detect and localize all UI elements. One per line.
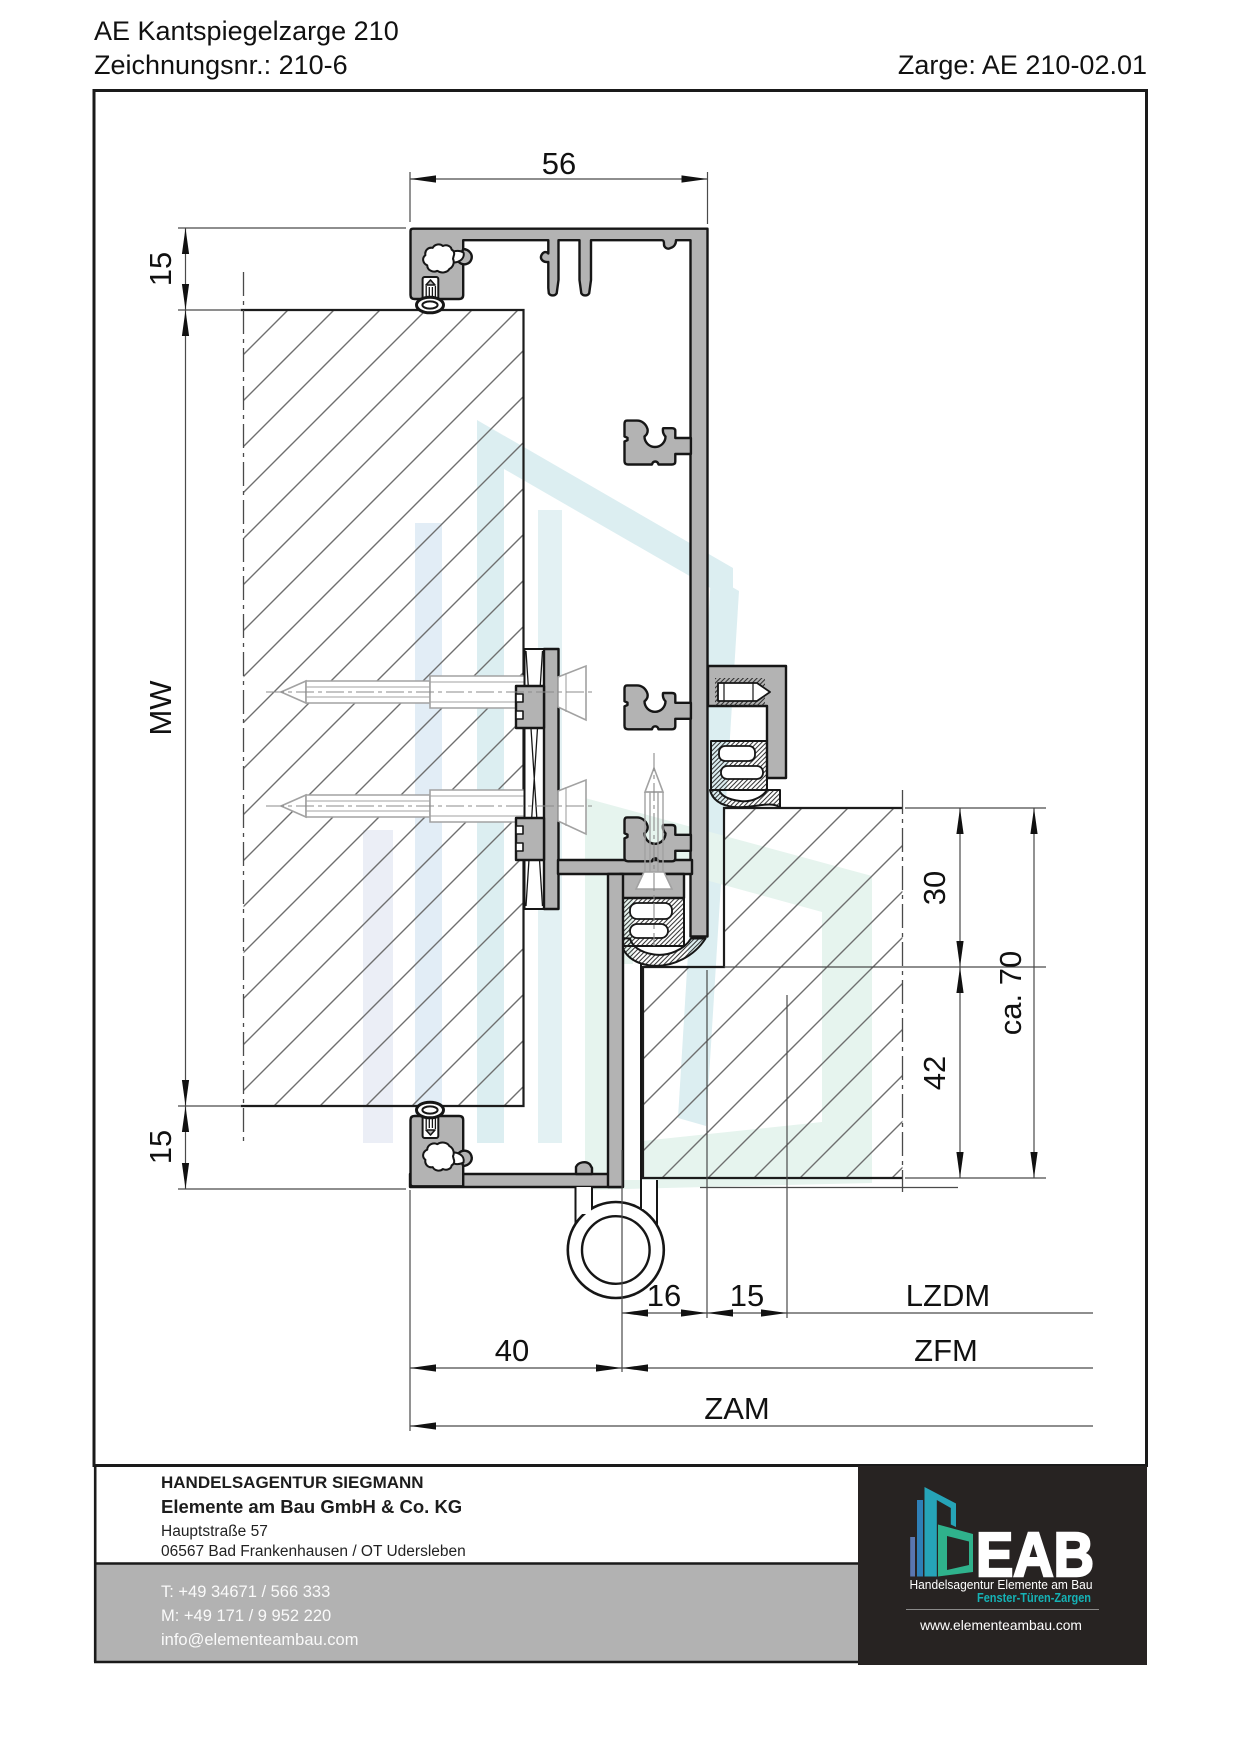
svg-text:Zarge: AE 210-02.01: Zarge: AE 210-02.01	[898, 50, 1147, 80]
svg-text:30: 30	[917, 871, 952, 905]
svg-text:HANDELSAGENTUR SIEGMANN: HANDELSAGENTUR SIEGMANN	[161, 1473, 424, 1492]
svg-text:06567 Bad Frankenhausen / OT U: 06567 Bad Frankenhausen / OT Udersleben	[161, 1543, 466, 1560]
svg-text:MW: MW	[143, 680, 178, 736]
svg-text:ZFM: ZFM	[914, 1333, 978, 1368]
svg-text:T: +49 34671 / 566 333: T: +49 34671 / 566 333	[161, 1583, 330, 1601]
svg-text:16: 16	[647, 1278, 681, 1313]
svg-text:15: 15	[143, 1130, 178, 1164]
svg-text:ca. 70: ca. 70	[993, 951, 1028, 1035]
svg-text:LZDM: LZDM	[906, 1278, 990, 1313]
svg-text:Zeichnungsnr.: 210-6: Zeichnungsnr.: 210-6	[94, 50, 348, 80]
svg-text:Elemente am Bau GmbH & Co. KG: Elemente am Bau GmbH & Co. KG	[161, 1496, 462, 1517]
svg-text:40: 40	[495, 1333, 529, 1368]
svg-text:AE Kantspiegelzarge 210: AE Kantspiegelzarge 210	[94, 16, 399, 46]
svg-text:Hauptstraße 57: Hauptstraße 57	[161, 1523, 268, 1540]
svg-text:42: 42	[917, 1056, 952, 1090]
svg-text:15: 15	[730, 1278, 764, 1313]
svg-text:www.elementeambau.com: www.elementeambau.com	[919, 1618, 1082, 1633]
svg-text:M: +49 171 / 9 952 220: M: +49 171 / 9 952 220	[161, 1607, 331, 1625]
svg-text:ZAM: ZAM	[704, 1391, 769, 1426]
svg-text:info@elementeambau.com: info@elementeambau.com	[161, 1631, 358, 1649]
svg-text:56: 56	[542, 146, 576, 181]
svg-text:Fenster-Türen-Zargen: Fenster-Türen-Zargen	[977, 1590, 1091, 1605]
svg-text:15: 15	[143, 252, 178, 286]
